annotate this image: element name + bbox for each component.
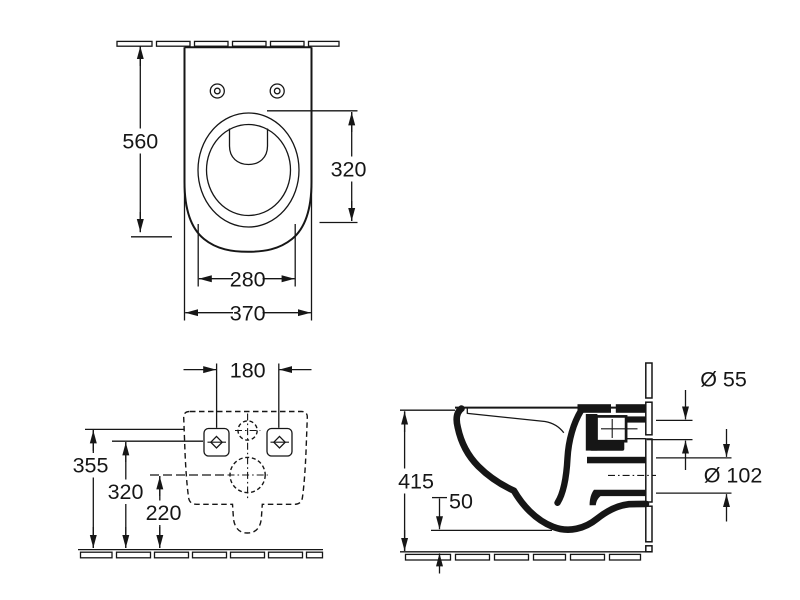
dim-label-355: 355 [73,454,109,478]
wall-tile [195,41,229,46]
wall-tile [646,439,652,502]
side-view: 415 50 Ø 55 Ø 102 [394,363,762,574]
floor-hatch [406,554,641,560]
toilet-section-profile [455,404,656,529]
dim-label-560: 560 [122,130,158,154]
bowl-opening [207,125,291,216]
rear-view: 180 355 320 220 [68,358,323,558]
floor-tile [456,554,490,560]
wall-tile [117,41,152,46]
dim-label-320-rear: 320 [108,480,144,504]
wall-tile [309,41,340,46]
dim-inlet-diameter-55: Ø 55 [647,368,747,470]
wall-tile [646,402,652,435]
dim-label-dia-55: Ø 55 [700,368,747,392]
wall-tile [646,546,652,552]
dim-bowl-width-280: 280 [198,224,295,291]
floor-tile [610,554,641,560]
wall-tile [233,41,267,46]
seat-ring [198,113,299,227]
dim-outlet-height-220: 220 [141,475,228,548]
floor-tile [495,554,529,560]
rim-inner-edge [467,413,564,432]
floor-tile [81,552,113,558]
floor-tile [155,552,189,558]
wall-section [646,363,652,552]
hinge-hole-left-center [215,88,221,94]
dim-outlet-diameter-102: Ø 102 [656,429,762,522]
outlet-pipe-top [587,457,646,464]
dim-depth-560: 560 [118,46,172,237]
dim-label-415: 415 [398,470,434,494]
floor-hatch [81,552,323,558]
flush-tongue [230,129,268,165]
technical-drawing: 560 320 280 370 [0,0,800,600]
toilet-body-outline [185,47,312,252]
floor-tile [193,552,227,558]
top-view: 560 320 280 370 [117,41,372,325]
floor-tile [571,554,605,560]
dim-label-280: 280 [230,267,266,291]
dim-label-220: 220 [146,501,182,525]
dim-label-50: 50 [449,490,473,514]
rim-back-bar [616,404,646,413]
wall-tile [157,41,191,46]
wall-tile [646,506,652,542]
floor-tile [269,552,303,558]
wall-tile [271,41,305,46]
floor-tile [231,552,265,558]
dim-bottom-gap-50: 50 [431,490,552,574]
floor-tile [534,554,566,560]
dim-label-370: 370 [230,301,266,325]
dim-fixing-height-320: 320 [103,441,203,548]
dim-label-dia-102: Ø 102 [704,464,763,488]
hinge-hole-left [210,84,224,98]
dim-body-width-370: 370 [185,186,312,325]
bowl-back-wall [558,411,582,503]
floor-tile [307,552,323,558]
inlet-wall-bar [626,416,646,422]
inlet-lower-mass [590,441,625,451]
dim-label-320-plan: 320 [331,158,367,182]
floor-tile [406,554,451,560]
dim-label-180: 180 [230,358,266,382]
hinge-hole-right [270,84,284,98]
rear-outline [184,412,308,534]
plan-wall-hatch [117,41,339,46]
hinge-hole-right-center [274,88,280,94]
rim-back-bar [578,404,612,413]
floor-tile [117,552,151,558]
wall-tile [646,363,652,398]
